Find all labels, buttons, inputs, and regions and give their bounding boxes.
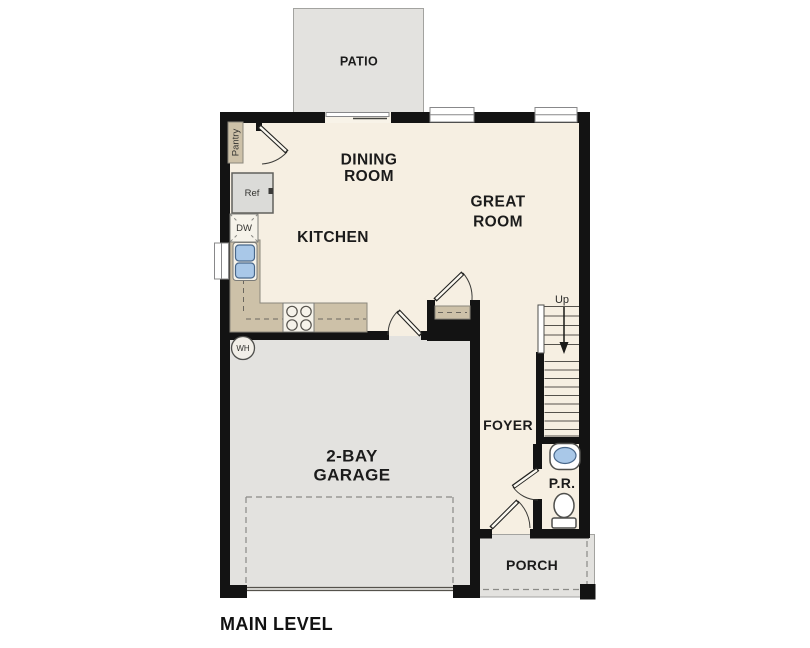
floor-plan-page: PATIO DINING ROOM GREAT ROOM KITCHEN 2-B… [0,0,810,648]
patio-sliding-door [325,112,391,123]
powder-room-wall-lower [533,499,542,530]
powder-room-label: P.R. [549,475,576,491]
floor-plan-drawing: PATIO DINING ROOM GREAT ROOM KITCHEN 2-B… [0,0,810,648]
kitchen-sink [233,243,257,281]
pantry-label: Pantry [231,129,242,157]
front-wall-right [530,529,589,539]
great-room-label-line2: ROOM [473,214,523,231]
great-room-label-line1: GREAT [470,194,525,211]
garage-right-wall [470,300,480,598]
porch-post [580,584,596,600]
stair-left-wall [536,352,544,444]
dining-room-label-line2: ROOM [344,168,394,185]
stairs-up-label: Up [555,294,569,306]
dining-room-label-line1: DINING [341,152,398,169]
right-wall [579,112,590,538]
toilet [552,494,576,529]
dishwasher-label: DW [236,223,252,234]
powder-room-wall-upper [533,444,542,469]
closet-back-wall [435,319,470,341]
closet-left-wall [427,300,435,341]
left-wall [220,112,230,598]
porch-label: PORCH [506,557,558,573]
refrigerator-label: Ref [245,188,260,199]
stove [283,303,314,332]
foyer-label: FOYER [483,417,533,433]
refrigerator-handle [269,188,274,194]
level-title: MAIN LEVEL [220,614,333,634]
top-wall-left [220,112,325,123]
garage-label-line2: GARAGE [313,466,390,485]
stair-railing [538,305,544,353]
garage-bottom-wall-left [220,585,247,598]
water-heater-label: WH [236,344,250,353]
powder-room-sink [550,444,580,470]
patio-label: PATIO [340,55,378,69]
coat-closet [435,306,470,319]
kitchen-label: KITCHEN [297,229,369,246]
garage-label-line1: 2-BAY [326,447,378,466]
